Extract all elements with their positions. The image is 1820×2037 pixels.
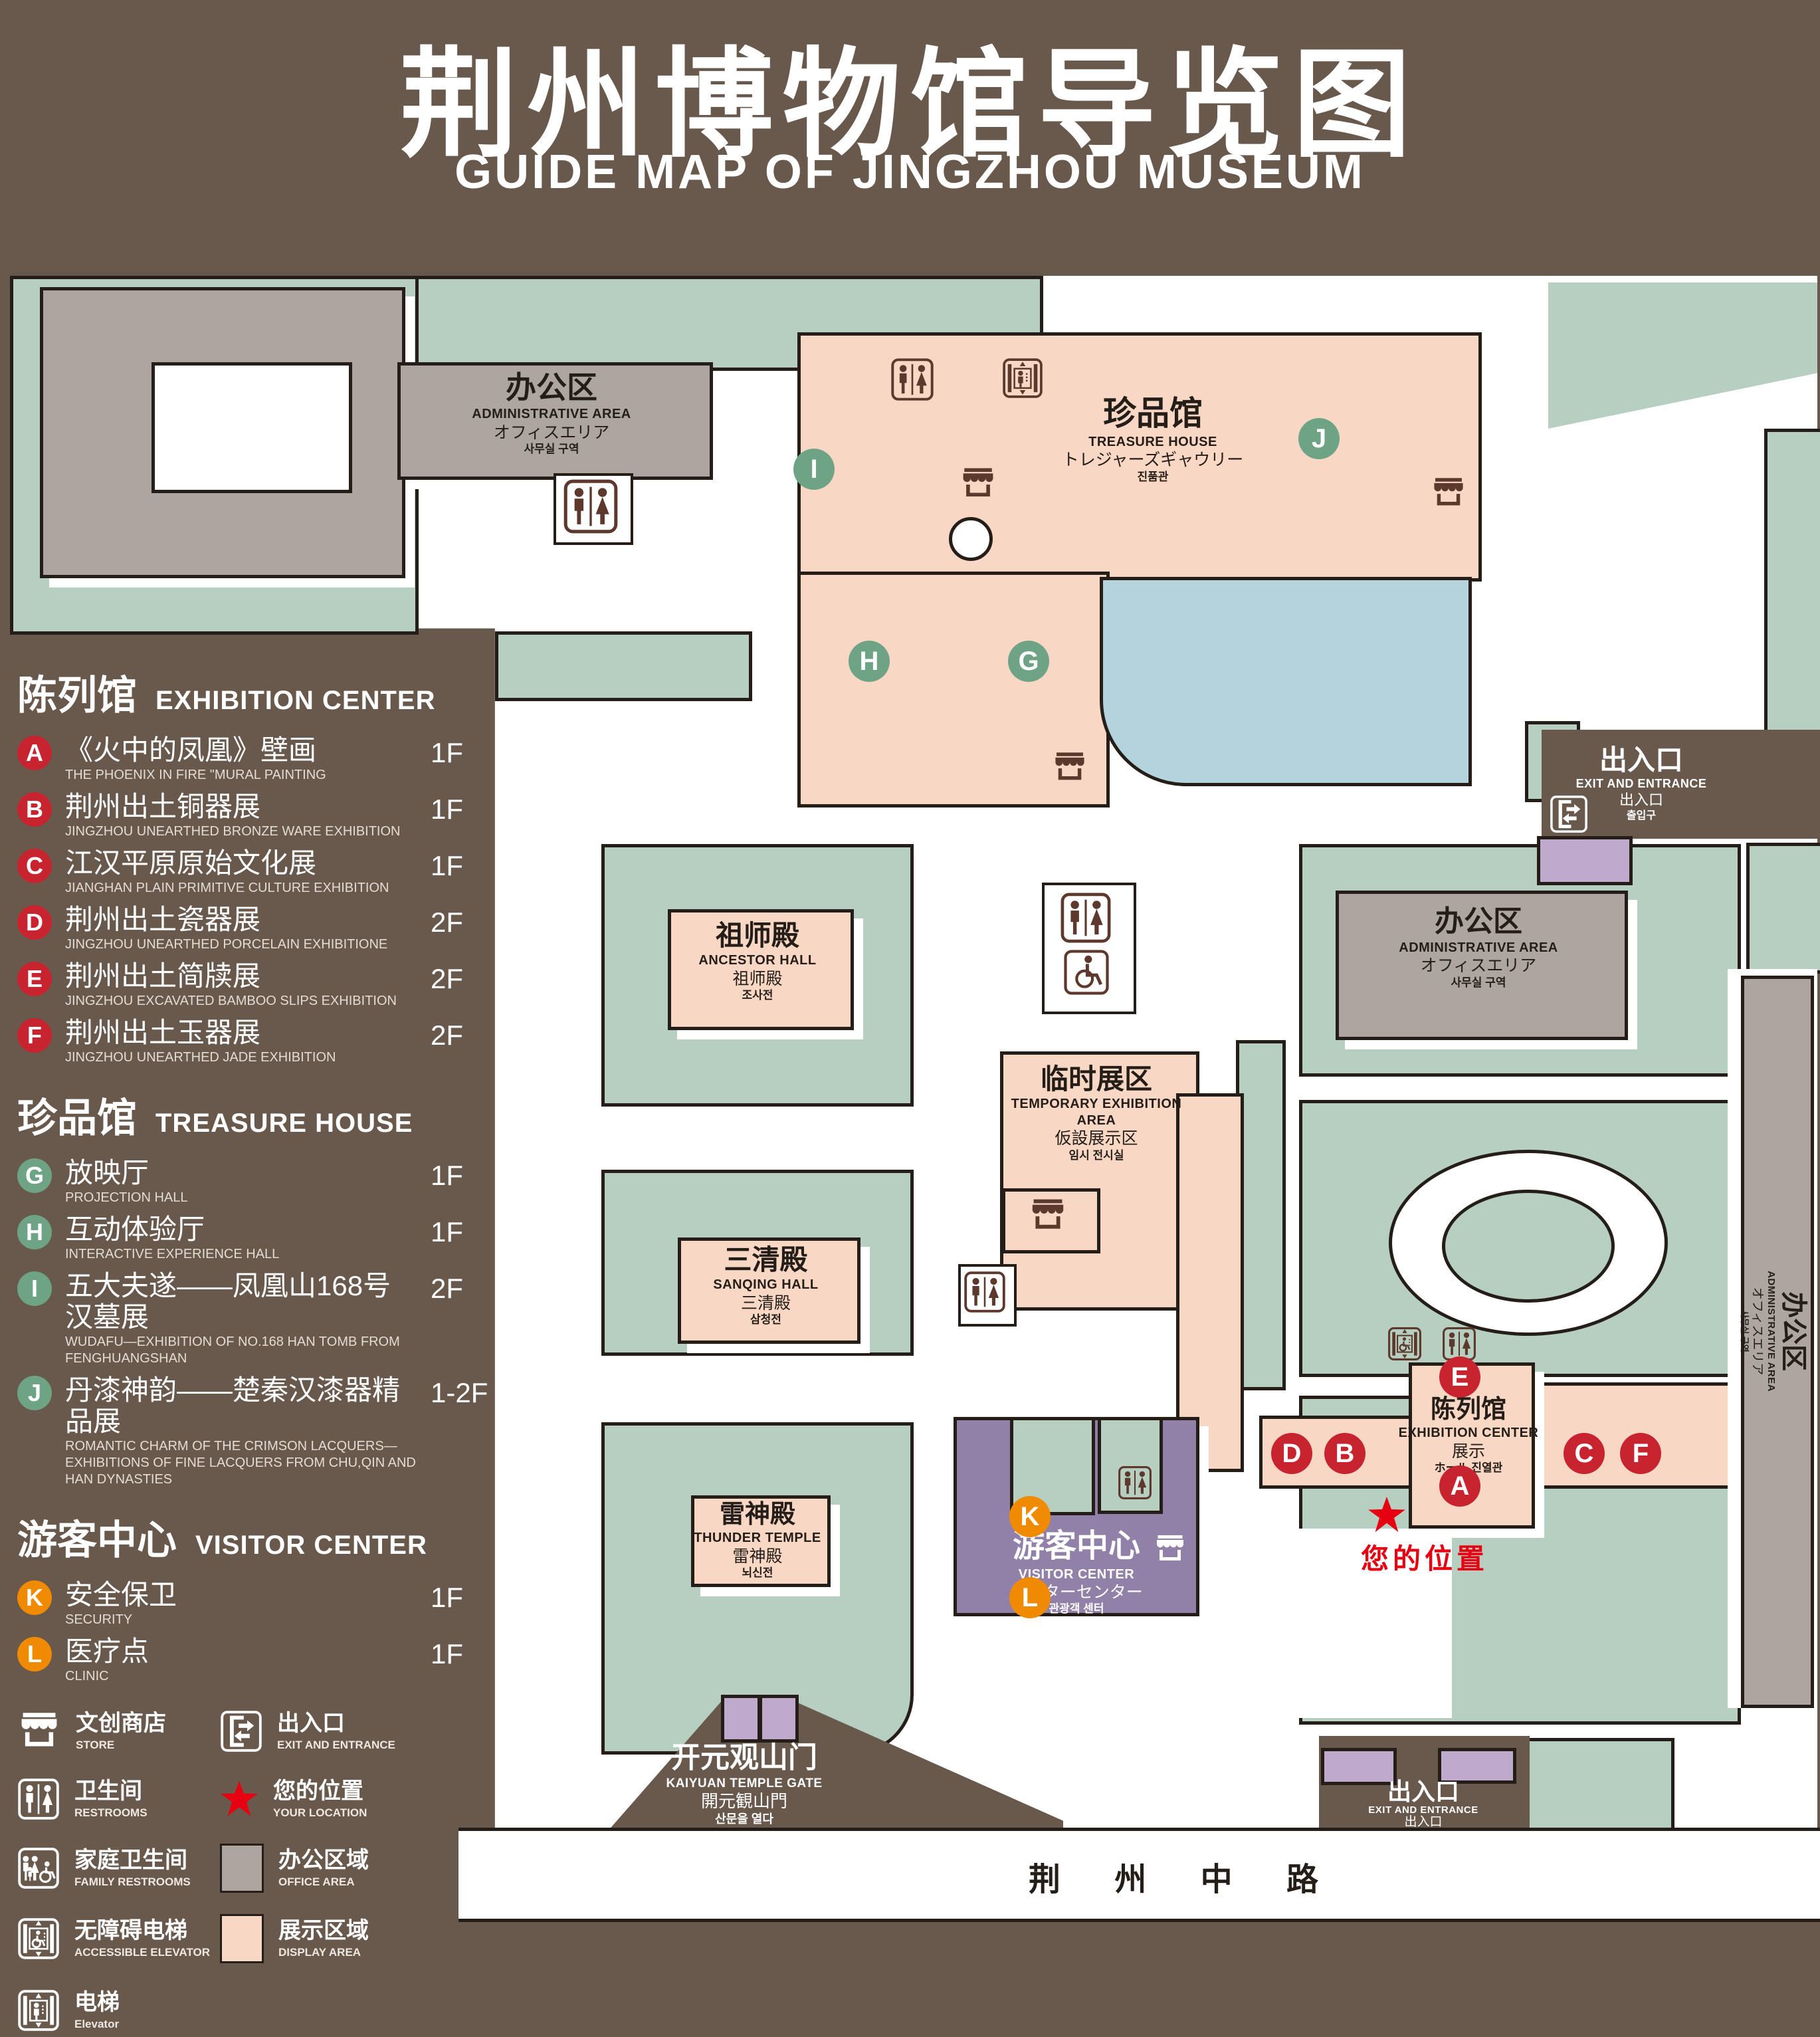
legend-item-H: H互动体验厅INTERACTIVE EXPERIENCE HALL1F bbox=[17, 1214, 490, 1263]
admin-nw-courtyard bbox=[152, 362, 352, 493]
map-marker-I: I bbox=[793, 449, 835, 490]
road-label: 荆 州 中 路 bbox=[1029, 1853, 1341, 1899]
symbol-restroom: 卫生间 RESTROOMS bbox=[17, 1774, 220, 1824]
legend-item-en: JINGZHOU UNEARTHED JADE EXHIBITION bbox=[65, 1049, 417, 1066]
map-marker-J: J bbox=[1298, 418, 1340, 459]
map-marker-L: L bbox=[1009, 1577, 1051, 1618]
symbol-label-en: ACCESSIBLE ELEVATOR bbox=[74, 1946, 210, 1959]
label-admin-east: 办公区 ADMINISTRATIVE AREA オフィスエリア 사무실 구역 bbox=[1342, 904, 1615, 990]
gate-lavender-2 bbox=[759, 1695, 799, 1743]
legend-item-I: I五大夫遂——凤凰山168号汉墓展WUDAFU—EXHIBITION OF NO… bbox=[17, 1270, 490, 1367]
restroom-icon bbox=[561, 479, 620, 534]
symbol-label-zh: 您的位置 bbox=[273, 1779, 367, 1804]
family-restroom-icon bbox=[17, 1843, 60, 1893]
section-title-zh: 珍品馆 bbox=[17, 1086, 137, 1144]
symbol-your-location: 您的位置 YOUR LOCATION bbox=[220, 1774, 446, 1824]
treasure-house-door-arc bbox=[949, 517, 993, 561]
office-area-swatch bbox=[220, 1844, 264, 1893]
map-marker-G: G bbox=[1008, 641, 1049, 682]
legend-badge-F: F bbox=[17, 1018, 52, 1053]
legend-badge-G: G bbox=[17, 1158, 52, 1193]
legend-item-A: A《火中的凤凰》壁画THE PHOENIX IN FIRE "MURAL PAI… bbox=[17, 734, 490, 784]
legend-item-zh: 互动体验厅 bbox=[65, 1214, 417, 1245]
legend-item-en: ROMANTIC CHARM OF THE CRIMSON LACQUERS—E… bbox=[65, 1438, 417, 1488]
store-icon bbox=[1051, 750, 1088, 786]
legend-section-header-visitor: 游客中心 VISITOR CENTER bbox=[17, 1508, 490, 1566]
accessible-restroom-icon bbox=[1063, 949, 1110, 996]
legend-item-floor: 1F bbox=[431, 1216, 490, 1248]
gate-lavender-1 bbox=[721, 1695, 761, 1743]
legend-item-C: C江汉平原原始文化展JIANGHAN PLAIN PRIMITIVE CULTU… bbox=[17, 847, 490, 897]
symbol-label-en: RESTROOMS bbox=[74, 1806, 148, 1820]
symbol-label-en: OFFICE AREA bbox=[278, 1876, 369, 1889]
legend-item-en: WUDAFU—EXHIBITION OF NO.168 HAN TOMB FRO… bbox=[65, 1334, 417, 1367]
accessible-elevator-icon bbox=[1386, 1327, 1423, 1361]
legend-item-zh: 江汉平原原始文化展 bbox=[65, 847, 417, 879]
legend-symbols: 文创商店 STORE 出入口 EXIT AND ENTRANCE 卫生间 RES… bbox=[17, 1707, 490, 2037]
legend-item-J: J丹漆神韵——楚秦汉漆器精品展ROMANTIC CHARM OF THE CRI… bbox=[17, 1374, 490, 1488]
accessible-elevator-icon bbox=[17, 1912, 60, 1965]
symbol-store: 文创商店 STORE bbox=[17, 1707, 220, 1755]
symbol-empty bbox=[220, 1984, 446, 2037]
section-title-en: VISITOR CENTER bbox=[195, 1531, 427, 1560]
section-title-en: EXHIBITION CENTER bbox=[155, 686, 435, 716]
lake bbox=[1100, 577, 1472, 786]
legend-item-floor: 2F bbox=[431, 907, 490, 938]
legend-item-floor: 2F bbox=[431, 963, 490, 995]
legend-item-en: PROJECTION HALL bbox=[65, 1190, 417, 1206]
symbol-label-zh: 出入口 bbox=[277, 1711, 395, 1736]
symbol-label-zh: 卫生间 bbox=[74, 1779, 148, 1804]
legend-item-zh: 荆州出土简牍展 bbox=[65, 960, 417, 992]
legend-section-header-exhibition: 陈列馆 EXHIBITION CENTER bbox=[17, 663, 490, 721]
legend-item-floor: 2F bbox=[431, 1273, 490, 1305]
exit-icon bbox=[220, 1707, 262, 1755]
legend-item-floor: 2F bbox=[431, 1019, 490, 1051]
symbol-label-en: YOUR LOCATION bbox=[273, 1806, 367, 1820]
legend-item-F: F荆州出土玉器展JINGZHOU UNEARTHED JADE EXHIBITI… bbox=[17, 1017, 490, 1066]
legend-section-header-treasure: 珍品馆 TREASURE HOUSE bbox=[17, 1086, 490, 1144]
symbol-label-zh: 家庭卫生间 bbox=[74, 1848, 191, 1873]
restroom-icon bbox=[963, 1271, 1006, 1313]
symbol-family-restroom: 家庭卫生间 FAMILY RESTROOMS bbox=[17, 1843, 220, 1893]
symbol-label-en: EXIT AND ENTRANCE bbox=[277, 1739, 395, 1752]
label-exhibition-center: 陈列馆 EXHIBITION CENTER 展示 ホール 진열관 bbox=[1369, 1394, 1568, 1475]
legend-item-floor: 1F bbox=[431, 737, 490, 769]
legend-item-en: CLINIC bbox=[65, 1668, 417, 1685]
legend-item-B: B荆州出土铜器展JINGZHOU UNEARTHED BRONZE WARE E… bbox=[17, 791, 490, 840]
label-ancestor-hall: 祖师殿 ANCESTOR HALL 祖师殿 조사전 bbox=[664, 918, 851, 1003]
legend-item-floor: 1-2F bbox=[431, 1377, 490, 1409]
symbol-label-en: STORE bbox=[76, 1739, 166, 1752]
store-icon bbox=[1029, 1196, 1067, 1235]
symbol-label-en: Elevator bbox=[74, 2018, 120, 2031]
map-marker-B: B bbox=[1324, 1433, 1365, 1474]
legend-item-zh: 医疗点 bbox=[65, 1636, 417, 1667]
label-exit-east: 出入口 EXIT AND ENTRANCE 出入口 출입구 bbox=[1555, 743, 1728, 823]
label-gate: 开元观山门 KAIYUAN TEMPLE GATE 開元観山門 산문을 열다 bbox=[638, 1740, 851, 1827]
legend-badge-E: E bbox=[17, 962, 52, 996]
legend-item-D: D荆州出土瓷器展JINGZHOU UNEARTHED PORCELAIN EXH… bbox=[17, 904, 490, 953]
legend-items-exhibition: A《火中的凤凰》壁画THE PHOENIX IN FIRE "MURAL PAI… bbox=[17, 734, 490, 1066]
location-star-icon bbox=[220, 1780, 258, 1818]
legend-item-L: L医疗点CLINIC1F bbox=[17, 1636, 490, 1685]
display-area-swatch bbox=[220, 1914, 264, 1963]
legend-items-treasure: G放映厅PROJECTION HALL1FH互动体验厅INTERACTIVE E… bbox=[17, 1157, 490, 1488]
legend-badge-I: I bbox=[17, 1271, 52, 1306]
legend-badge-L: L bbox=[17, 1637, 52, 1671]
legend-badge-D: D bbox=[17, 905, 52, 940]
legend-item-zh: 安全保卫 bbox=[65, 1579, 417, 1610]
label-admin-nw: 办公区 ADMINISTRATIVE AREA オフィスエリア 사무실 구역 bbox=[412, 369, 691, 457]
store-icon bbox=[17, 1709, 61, 1753]
map-marker-A: A bbox=[1439, 1465, 1480, 1507]
legend-item-zh: 荆州出土瓷器展 bbox=[65, 904, 417, 935]
map-marker-F: F bbox=[1620, 1433, 1661, 1474]
garden-se-corner bbox=[1515, 1738, 1674, 1834]
label-thunder-temple: 雷神殿 THUNDER TEMPLE 雷神殿 뇌신전 bbox=[668, 1499, 847, 1580]
symbol-label-zh: 文创商店 bbox=[76, 1711, 166, 1736]
map-marker-D: D bbox=[1271, 1433, 1312, 1474]
symbol-office-area: 办公区域 OFFICE AREA bbox=[220, 1843, 446, 1893]
legend-item-en: JINGZHOU EXCAVATED BAMBOO SLIPS EXHIBITI… bbox=[65, 993, 417, 1010]
legend-item-floor: 1F bbox=[431, 850, 490, 882]
garden-west-band bbox=[495, 631, 752, 701]
legend-item-en: INTERACTIVE EXPERIENCE HALL bbox=[65, 1246, 417, 1263]
restroom-icon bbox=[17, 1774, 60, 1824]
legend-item-en: THE PHOENIX IN FIRE "MURAL PAINTING bbox=[65, 767, 417, 784]
legend-item-floor: 1F bbox=[431, 794, 490, 825]
legend-badge-H: H bbox=[17, 1215, 52, 1249]
legend-item-floor: 1F bbox=[431, 1638, 490, 1670]
map-marker-E: E bbox=[1439, 1356, 1480, 1398]
legend-item-floor: 1F bbox=[431, 1582, 490, 1614]
legend-item-G: G放映厅PROJECTION HALL1F bbox=[17, 1157, 490, 1206]
section-title-en: TREASURE HOUSE bbox=[155, 1109, 413, 1138]
legend-item-zh: 荆州出土铜器展 bbox=[65, 791, 417, 822]
elevator-icon bbox=[1002, 358, 1043, 399]
legend-badge-B: B bbox=[17, 792, 52, 827]
restroom-icon bbox=[890, 358, 934, 401]
legend-item-en: SECURITY bbox=[65, 1612, 417, 1628]
legend-badge-J: J bbox=[17, 1376, 52, 1410]
legend-item-zh: 五大夫遂——凤凰山168号汉墓展 bbox=[65, 1270, 417, 1333]
symbol-accessible-elevator: 无障碍电梯 ACCESSIBLE ELEVATOR bbox=[17, 1912, 220, 1965]
symbol-label-en: FAMILY RESTROOMS bbox=[74, 1876, 191, 1889]
symbol-exit: 出入口 EXIT AND ENTRANCE bbox=[220, 1707, 446, 1755]
section-title-zh: 游客中心 bbox=[17, 1508, 177, 1566]
legend-badge-K: K bbox=[17, 1580, 52, 1615]
label-treasure-house: 珍品馆 TREASURE HOUSE トレジャーズギャウリー 진품관 bbox=[1010, 393, 1296, 484]
map-marker-K: K bbox=[1009, 1496, 1051, 1537]
restroom-icon bbox=[1118, 1465, 1152, 1500]
legend-item-floor: 1F bbox=[431, 1160, 490, 1192]
restroom-icon bbox=[1058, 892, 1114, 944]
legend-item-zh: 放映厅 bbox=[65, 1157, 417, 1188]
store-icon bbox=[959, 465, 997, 502]
legend-badge-A: A bbox=[17, 736, 52, 770]
legend-item-K: K安全保卫SECURITY1F bbox=[17, 1579, 490, 1628]
legend-item-en: JIANGHAN PLAIN PRIMITIVE CULTURE EXHIBIT… bbox=[65, 880, 417, 897]
symbol-label-zh: 办公区域 bbox=[278, 1848, 369, 1873]
symbol-label-zh: 电梯 bbox=[74, 1990, 120, 2015]
symbol-display-area: 展示区域 DISPLAY AREA bbox=[220, 1912, 446, 1965]
legend-item-zh: 《火中的凤凰》壁画 bbox=[65, 734, 417, 766]
garden-far-right bbox=[1746, 843, 1820, 974]
elevator-icon bbox=[17, 1984, 60, 2037]
legend-panel: 陈列馆 EXHIBITION CENTER A《火中的凤凰》壁画THE PHOE… bbox=[17, 663, 490, 2037]
label-visitor-center: 游客中心 VISITOR CENTER ビジターセンター 관광객 센터 bbox=[970, 1527, 1183, 1616]
symbol-label-zh: 展示区域 bbox=[278, 1919, 369, 1943]
section-title-zh: 陈列馆 bbox=[17, 663, 137, 721]
symbol-elevator: 电梯 Elevator bbox=[17, 1984, 220, 2037]
map-marker-H: H bbox=[849, 641, 890, 682]
legend-item-en: JINGZHOU UNEARTHED PORCELAIN EXHIBITIONE bbox=[65, 936, 417, 953]
label-sanqing-hall: 三清殿 SANQING HALL 三清殿 삼청전 bbox=[671, 1243, 860, 1327]
legend-item-zh: 荆州出土玉器展 bbox=[65, 1017, 417, 1048]
store-icon bbox=[1154, 1533, 1187, 1566]
legend-item-E: E荆州出土简牍展JINGZHOU EXCAVATED BAMBOO SLIPS … bbox=[17, 960, 490, 1010]
store-icon bbox=[1430, 475, 1467, 511]
legend-item-zh: 丹漆神韵——楚秦汉漆器精品展 bbox=[65, 1374, 417, 1437]
legend-badge-C: C bbox=[17, 849, 52, 883]
map-marker-C: C bbox=[1564, 1433, 1605, 1474]
east-exit-lavender bbox=[1537, 836, 1633, 885]
label-admin-strip: 办公区 ADMINISTRATIVE AREA オフィスエリア 사무실 구역 bbox=[1739, 1232, 1809, 1431]
symbol-label-zh: 无障碍电梯 bbox=[74, 1919, 210, 1943]
parterre-island bbox=[1442, 1190, 1615, 1303]
your-location-label: 您的位置 bbox=[1361, 1537, 1488, 1577]
guide-map-poster: { "title": {"zh": "荆州博物馆导览图", "en": "GUI… bbox=[0, 0, 1820, 1946]
label-temporary-exhibition: 临时展区 TEMPORARY EXHIBITION AREA 仮設展示区 임시 … bbox=[990, 1062, 1203, 1162]
symbol-label-en: DISPLAY AREA bbox=[278, 1946, 369, 1959]
legend-items-visitor: K安全保卫SECURITY1FL医疗点CLINIC1F bbox=[17, 1579, 490, 1685]
legend-item-en: JINGZHOU UNEARTHED BRONZE WARE EXHIBITIO… bbox=[65, 823, 417, 840]
